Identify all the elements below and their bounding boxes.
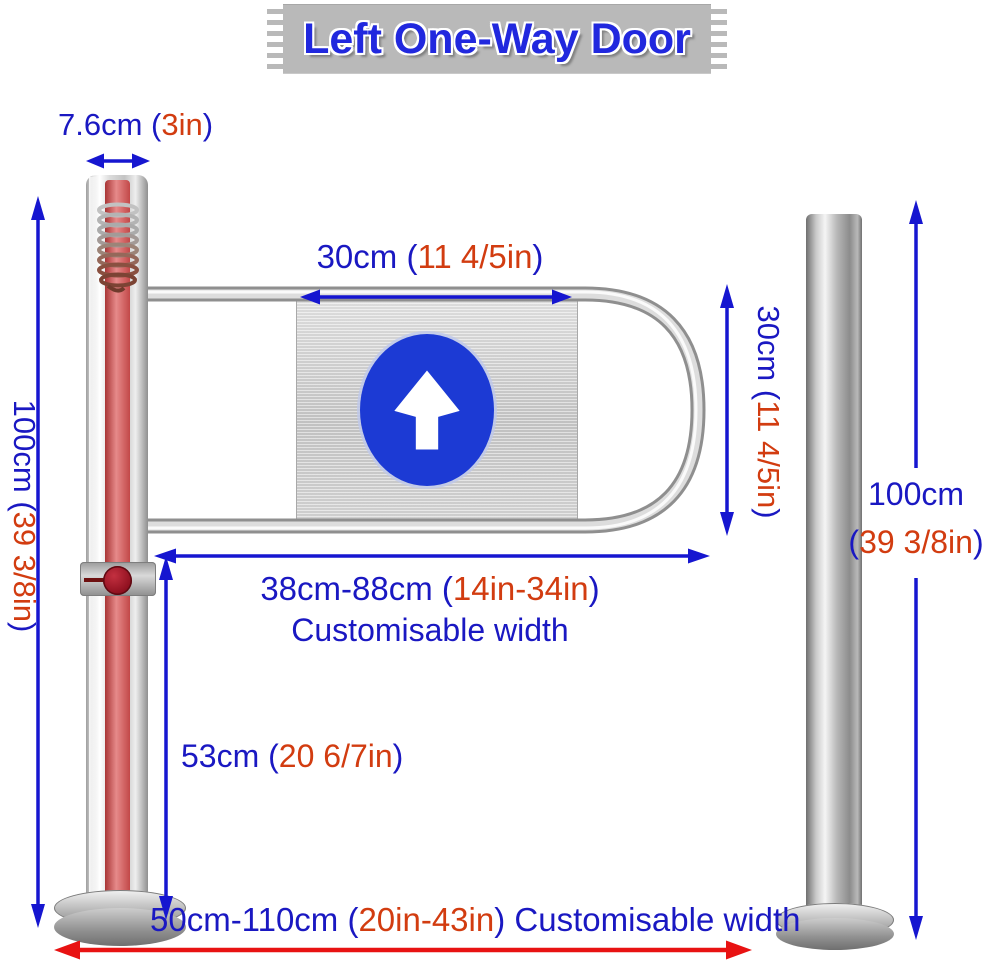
plain-post: [806, 214, 862, 914]
gate-width-imperial: 14in-34in: [453, 570, 589, 607]
left-height-close: ): [7, 622, 42, 632]
handle-height-imperial: 20 6/7in: [279, 738, 393, 774]
left-height-imperial: 39 3/8in: [7, 512, 42, 622]
sign-width-metric: 30cm (: [317, 238, 418, 275]
gate-width-close: ): [589, 570, 600, 607]
red-total-width-arrow: [54, 941, 752, 960]
total-width-metric: 50cm-110cm (: [150, 901, 358, 938]
sign-width-imperial: 11 4/5in: [417, 238, 532, 275]
gate-height-imperial: 11 4/5in: [751, 400, 786, 508]
banner-fringe-left: [267, 9, 283, 69]
gate-height-label: 30cm (11 4/5in): [750, 294, 786, 530]
right-height-paren: (39 3/8in): [836, 524, 996, 561]
gate-height-metric: 30cm (: [751, 305, 786, 400]
post-highlight: [89, 177, 98, 913]
spring-post: [86, 175, 148, 915]
gate-height-close: ): [751, 508, 786, 518]
gate-width-note: Customisable width: [230, 612, 630, 649]
one-way-sign: [360, 334, 494, 486]
right-height-open: (: [848, 524, 859, 560]
handle-height-metric: 53cm (: [181, 738, 279, 774]
pole-width-imperial: 3in: [161, 107, 202, 142]
pole-width-label: 7.6cm (3in): [48, 107, 223, 143]
pole-width-metric: 7.6cm (: [58, 107, 161, 142]
gate-width-metric: 38cm-88cm (: [260, 570, 453, 607]
total-width-note: ) Customisable width: [494, 901, 800, 938]
right-height-imperial: 39 3/8in: [859, 524, 973, 560]
title-banner: Left One-Way Door: [283, 4, 711, 74]
clamp-knob: [103, 566, 132, 595]
total-width-label: 50cm-110cm (20in-43in) Customisable widt…: [150, 901, 760, 939]
right-height-value: 100cm: [846, 476, 986, 513]
gate-width-label: 38cm-88cm (14in-34in): [230, 570, 630, 608]
gate-sign-panel: [296, 300, 578, 522]
banner-fringe-right: [711, 9, 727, 69]
sign-width-close: ): [532, 238, 543, 275]
product-diagram: Left One-Way Door: [0, 0, 1000, 963]
left-height-label: 100cm (39 3/8in): [6, 395, 42, 637]
right-height-close: ): [973, 524, 984, 560]
total-width-imperial: 20in-43in: [358, 901, 494, 938]
handle-height-close: ): [393, 738, 404, 774]
page-title: Left One-Way Door: [303, 15, 691, 64]
sign-width-label: 30cm (11 4/5in): [280, 238, 580, 276]
left-height-metric: 100cm (: [7, 400, 42, 512]
handle-height-label: 53cm (20 6/7in): [181, 738, 403, 775]
up-arrow-icon: [384, 358, 470, 462]
post-inner-rod: [105, 180, 130, 910]
pole-width-close: ): [203, 107, 213, 142]
clamp-indicator-line: [84, 578, 104, 582]
